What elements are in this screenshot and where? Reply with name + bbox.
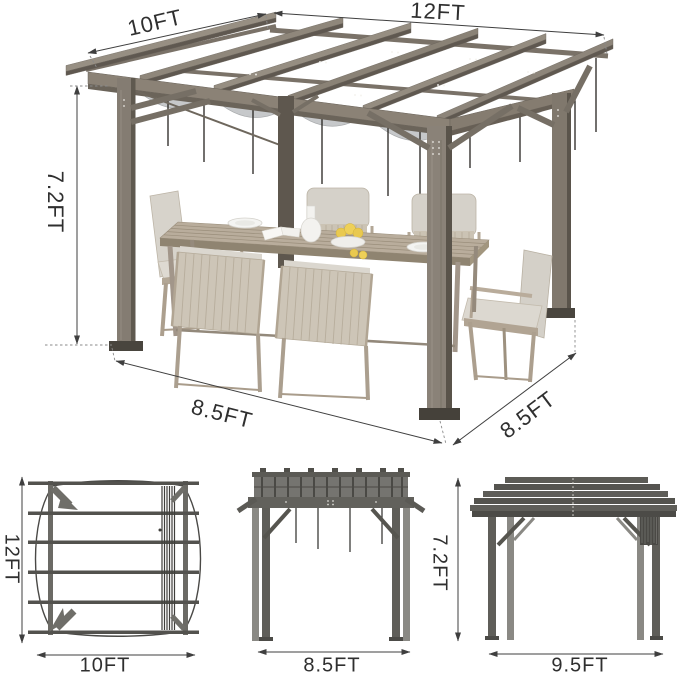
front-left-post: [117, 78, 131, 348]
near-chair-right: [276, 260, 372, 400]
dining-set: [150, 188, 552, 400]
near-chair-left: [172, 246, 264, 392]
top-view-corner-braces: [49, 488, 184, 632]
dim-label-width: 12FT: [410, 0, 467, 26]
front-corner-post: [368, 106, 512, 420]
front-view-height-label: 7.2FT: [428, 534, 451, 591]
top-view-beams: [28, 482, 199, 635]
dim-line-base-left: [116, 361, 442, 443]
front-view-width-label: 8.5FT: [303, 655, 360, 677]
main-3d-view: [45, 12, 613, 445]
side-view-legs: [485, 517, 663, 640]
top-view-width-label: 10FT: [80, 655, 131, 677]
front-view-hanging-rods: [296, 508, 382, 552]
post-base-plate: [419, 408, 460, 420]
front-right-post: [552, 93, 567, 316]
front-view-roof: [238, 468, 424, 511]
front-view-legs: [252, 508, 410, 641]
top-view-depth-label: 12FT: [0, 534, 23, 585]
top-view-rail-right: [183, 481, 188, 635]
side-view-width-label: 9.5FT: [551, 655, 608, 677]
side-view-roof: [470, 477, 677, 517]
front-view: [238, 468, 424, 652]
dim-label-height: 7.2FT: [42, 171, 68, 233]
product-dimension-diagram: 10FT 12FT 7.2FT 8.5FT 8.5FT 12FT 10FT 8.…: [0, 0, 679, 677]
post-base-plate: [545, 308, 575, 318]
side-view-folded-canopy: [640, 517, 658, 545]
pergola-diagram-canvas: [0, 0, 679, 677]
top-view-folded-canopy: [159, 486, 175, 630]
top-view-rail-left: [48, 481, 53, 635]
post-base-plate: [109, 341, 143, 351]
side-view: [458, 477, 677, 654]
top-view: [22, 477, 201, 655]
